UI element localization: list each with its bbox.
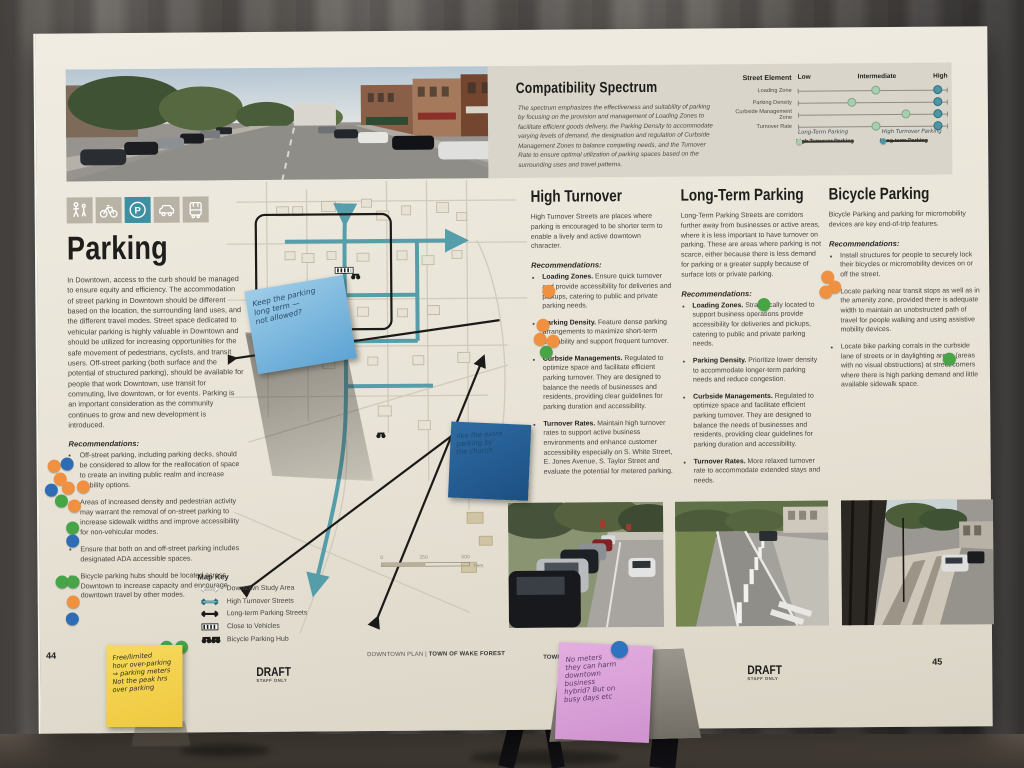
svg-text:250: 250 xyxy=(419,555,428,561)
spectrum-title: Compatibility Spectrum xyxy=(516,79,658,97)
recommendations-heading: Recommendations: xyxy=(681,288,823,298)
blue-vote-dot xyxy=(45,484,58,497)
orange-vote-dot xyxy=(534,333,547,346)
map-key-title: Map Key xyxy=(198,571,348,581)
orange-vote-dot xyxy=(819,285,832,298)
blue-vote-dot xyxy=(61,457,74,470)
section-title: Long-Term Parking xyxy=(680,186,803,206)
page-number-left: 44 xyxy=(46,651,56,661)
section-bullet: Curbside Managements. Regulated to optim… xyxy=(693,391,824,450)
light-green-dot xyxy=(901,109,910,118)
blue-sticky-note: Keep the parking long term — not allowed… xyxy=(244,275,356,374)
section-intro: Bicycle Parking and parking for micromob… xyxy=(829,209,981,230)
downtown-street-photo xyxy=(66,66,517,182)
section-title: Bicycle Parking xyxy=(828,185,929,205)
light-green-dot xyxy=(871,122,880,131)
floor-shadow xyxy=(470,750,620,765)
page-title: Parking xyxy=(67,229,168,268)
spectrum-intermediate-label: Intermediate xyxy=(858,73,897,80)
section-bullet: Locate parking near transit stops as wel… xyxy=(840,286,981,335)
spectrum-legend-item: High Turnover Parking Long-term Parking xyxy=(880,138,928,144)
parked-cars-photo xyxy=(508,502,664,628)
recommendations-heading: Recommendations: xyxy=(531,260,673,270)
orange-vote-dot xyxy=(77,480,90,493)
green-vote-dot xyxy=(540,346,553,359)
map-key-item: Bicycle Parking Hub xyxy=(198,633,348,644)
svg-text:500: 500 xyxy=(461,554,470,560)
dark-blue-sticky-note: like the extra parking by the church xyxy=(448,421,531,500)
parking-bullet: Areas of increased density and pedestria… xyxy=(80,497,245,538)
section-bullet: Curbside Managements. Regulated to optim… xyxy=(543,354,674,413)
section-intro: Long-Term Parking Streets are corridors … xyxy=(681,211,824,281)
section-title: High Turnover xyxy=(530,187,622,207)
map-key-item: Downtown Study Area xyxy=(198,583,348,593)
orange-vote-dot xyxy=(68,499,81,512)
floor-shadow xyxy=(180,744,270,757)
section-bullet: Locate bike parking corrals in the curbs… xyxy=(841,341,982,390)
pedestrian-icon xyxy=(67,197,93,223)
bicycle-icon xyxy=(96,197,122,223)
section-bullet: Install structures for people to securel… xyxy=(840,250,981,280)
orange-vote-dot xyxy=(537,319,550,332)
spectrum-col-header: Street Element xyxy=(726,74,798,82)
footer-left: DOWNTOWN PLAN | TOWN OF WAKE FOREST xyxy=(367,651,505,658)
teal-dot xyxy=(933,97,942,106)
high-turnover-icon xyxy=(198,597,222,606)
green-vote-dot xyxy=(757,298,770,311)
bicycle-hub-icon xyxy=(198,634,222,644)
green-vote-dot xyxy=(66,521,79,534)
photo-scene: Compatibility Spectrum The spectrum emph… xyxy=(0,0,1024,768)
pink-sticky-note: No meters they can harm downtown busines… xyxy=(555,642,653,743)
map-key-item: High Turnover Streets xyxy=(198,596,348,606)
orange-vote-dot xyxy=(62,481,75,494)
compatibility-spectrum-panel: Compatibility Spectrum The spectrum emph… xyxy=(488,63,953,179)
page-number-right: 45 xyxy=(932,657,942,667)
spectrum-description: The spectrum emphasizes the effectivenes… xyxy=(518,102,719,170)
light-green-dot xyxy=(796,139,802,145)
green-vote-dot xyxy=(67,575,80,588)
travel-mode-icons: P xyxy=(67,196,209,223)
blue-round-sticker xyxy=(611,641,628,658)
orange-vote-dot xyxy=(67,595,80,608)
parking-body-text: In Downtown, access to the curb should b… xyxy=(67,274,244,431)
blue-vote-dot xyxy=(66,612,79,625)
svg-text:P: P xyxy=(134,206,141,217)
section-bullet: Loading Zones. Ensure quick turnover and… xyxy=(542,272,673,312)
study-area-icon xyxy=(198,584,222,593)
blue-vote-dot xyxy=(66,534,79,547)
car-icon xyxy=(154,197,180,223)
bicycle-parking-section: Bicycle Parking Bicycle Parking and park… xyxy=(828,184,982,397)
green-vote-dot xyxy=(55,494,68,507)
parking-bullet: Off-street parking, including parking de… xyxy=(80,451,245,492)
draft-stamp-left: DRAFT STAFF ONLY xyxy=(256,666,298,683)
poster-board: Compatibility Spectrum The spectrum emph… xyxy=(33,26,992,733)
light-green-dot xyxy=(847,98,856,107)
map-key-item: Close to Vehicles xyxy=(198,621,348,631)
green-vote-dot xyxy=(943,353,956,366)
yellow-sticky-note: Free/limited hour over-parking ⇒ parking… xyxy=(106,645,182,727)
map-key-item: Long-term Parking Streets xyxy=(198,608,348,618)
bus-icon xyxy=(183,196,209,222)
bike-lane-photo xyxy=(675,501,829,627)
map-key: Map Key Downtown Study Area High Turnove… xyxy=(198,571,349,648)
teal-dot xyxy=(880,138,886,144)
section-bullet: Parking Density. Feature dense parking a… xyxy=(543,318,674,348)
parking-section: Parking In Downtown, access to the curb … xyxy=(67,228,246,609)
recommendations-heading: Recommendations: xyxy=(829,238,981,248)
handwritten-correction: High Turnover Parking xyxy=(882,129,942,135)
orange-vote-dot xyxy=(48,460,61,473)
section-bullet: Turnover Rates. More relaxed turnover ra… xyxy=(694,456,825,486)
parking-icon: P xyxy=(125,197,151,223)
teal-dot xyxy=(933,109,942,118)
section-bullet: Turnover Rates. Maintain high turnover r… xyxy=(543,418,674,477)
close-to-vehicles-icon xyxy=(198,622,222,631)
spectrum-chart: Street Element Low Intermediate High Loa… xyxy=(726,73,949,146)
section-intro: High Turnover Streets are places where p… xyxy=(531,212,673,252)
svg-text:0: 0 xyxy=(380,555,383,561)
sidewalk-photo xyxy=(841,499,994,625)
parking-bullet: Ensure that both on and off-street parki… xyxy=(80,544,245,565)
long-term-icon xyxy=(198,609,222,618)
spectrum-low-label: Low xyxy=(798,74,811,81)
orange-vote-dot xyxy=(542,285,555,298)
svg-text:Feet: Feet xyxy=(473,563,484,569)
section-bullet: Parking Density. Prioritize lower densit… xyxy=(693,355,824,385)
spectrum-high-label: High xyxy=(933,73,948,80)
draft-stamp-right: DRAFT STAFF ONLY xyxy=(747,664,789,681)
handwritten-correction: Long-Term Parking xyxy=(798,129,848,135)
teal-dot xyxy=(933,85,942,94)
light-green-dot xyxy=(871,86,880,95)
spectrum-legend-item: Long-Term Parking High Turnover Parking xyxy=(796,138,854,144)
long-term-section: Long-Term Parking Long-Term Parking Stre… xyxy=(680,186,824,494)
recommendations-heading: Recommendations: xyxy=(68,439,244,449)
